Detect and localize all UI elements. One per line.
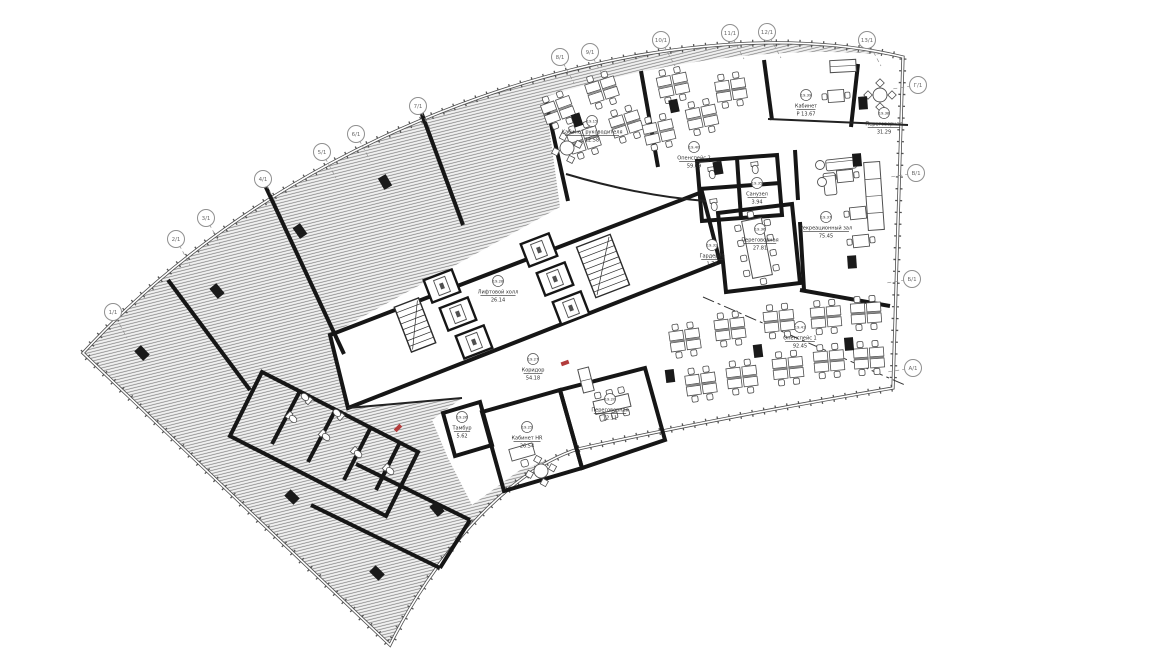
svg-text:5.62: 5.62 (456, 434, 467, 440)
svg-text:3.94: 3.94 (751, 200, 762, 206)
svg-text:8/1: 8/1 (556, 55, 565, 61)
floor-plan-drawing: 19.15Кабинет руководителя12.5819.40Опенс… (0, 0, 1157, 651)
svg-text:19.28: 19.28 (493, 279, 504, 284)
floor-plan: 19.15Кабинет руководителя12.5819.40Опенс… (0, 0, 1157, 651)
svg-text:19.15: 19.15 (587, 119, 598, 124)
svg-text:19.35: 19.35 (752, 181, 763, 186)
svg-text:19.39: 19.39 (801, 93, 812, 98)
svg-text:54.18: 54.18 (526, 376, 540, 382)
svg-text:Кабинет руководителя: Кабинет руководителя (562, 130, 623, 136)
svg-text:19.37: 19.37 (821, 215, 832, 220)
svg-text:2/1: 2/1 (172, 237, 181, 243)
svg-text:9/1: 9/1 (586, 50, 595, 56)
svg-text:31.29: 31.29 (877, 130, 891, 136)
svg-text:3/1: 3/1 (202, 216, 211, 222)
svg-text:Тамбур: Тамбур (451, 426, 471, 432)
svg-text:19.41: 19.41 (795, 325, 806, 330)
svg-text:5/1: 5/1 (318, 150, 327, 156)
armchair (816, 161, 825, 170)
svg-text:1.76: 1.76 (706, 262, 717, 268)
counter (830, 59, 857, 72)
svg-text:Переговорная: Переговорная (591, 408, 628, 414)
svg-text:6/1: 6/1 (352, 132, 361, 138)
svg-text:Р 13.67: Р 13.67 (797, 112, 816, 118)
svg-text:Г/1: Г/1 (914, 83, 923, 89)
svg-text:19.20: 19.20 (605, 397, 616, 402)
svg-text:Кабинет: Кабинет (795, 104, 817, 110)
svg-text:12.58: 12.58 (585, 138, 599, 144)
svg-text:13/1: 13/1 (861, 38, 873, 44)
svg-text:12.11: 12.11 (603, 416, 617, 422)
svg-text:Рекреационный зал: Рекреационный зал (800, 225, 852, 232)
svg-text:Лифтовой холл: Лифтовой холл (478, 289, 519, 296)
column (753, 344, 764, 358)
svg-text:12/1: 12/1 (761, 30, 773, 36)
svg-text:1/1: 1/1 (109, 310, 118, 316)
svg-text:В/1: В/1 (911, 171, 920, 177)
svg-text:59.69: 59.69 (687, 164, 701, 170)
column (665, 369, 676, 383)
svg-text:19.26: 19.26 (457, 415, 468, 420)
svg-text:Кабинет HR: Кабинет HR (511, 436, 543, 442)
svg-text:19.36: 19.36 (755, 227, 766, 232)
svg-text:4/1: 4/1 (259, 177, 268, 183)
svg-text:19.27: 19.27 (528, 357, 539, 362)
svg-text:7/1: 7/1 (414, 104, 423, 110)
svg-text:92.45: 92.45 (793, 344, 807, 350)
svg-text:19.32: 19.32 (707, 243, 718, 248)
svg-text:26.14: 26.14 (491, 298, 505, 304)
svg-text:19.40: 19.40 (689, 145, 700, 150)
svg-text:Опенспейс 1: Опенспейс 1 (783, 335, 816, 342)
armchair (818, 178, 827, 187)
svg-text:Опенспейс 2: Опенспейс 2 (677, 155, 710, 162)
svg-text:10/1: 10/1 (655, 38, 667, 44)
column (852, 153, 862, 167)
svg-text:19.38: 19.38 (879, 111, 890, 116)
column (844, 337, 854, 351)
svg-text:75.45: 75.45 (819, 234, 833, 240)
svg-text:26.54: 26.54 (520, 444, 534, 450)
svg-text:А/1: А/1 (908, 366, 917, 372)
svg-text:Переговорная: Переговорная (741, 238, 778, 244)
svg-text:Б/1: Б/1 (907, 277, 916, 283)
svg-text:Переговорная: Переговорная (865, 122, 902, 128)
svg-text:19.25: 19.25 (522, 425, 533, 430)
svg-text:Санузел: Санузел (746, 192, 768, 198)
svg-text:11/1: 11/1 (724, 31, 736, 37)
column (858, 96, 868, 110)
svg-text:Коридор: Коридор (522, 368, 545, 374)
column (847, 255, 857, 269)
svg-text:27.81: 27.81 (753, 246, 767, 252)
svg-text:Гардероб: Гардероб (699, 254, 724, 260)
